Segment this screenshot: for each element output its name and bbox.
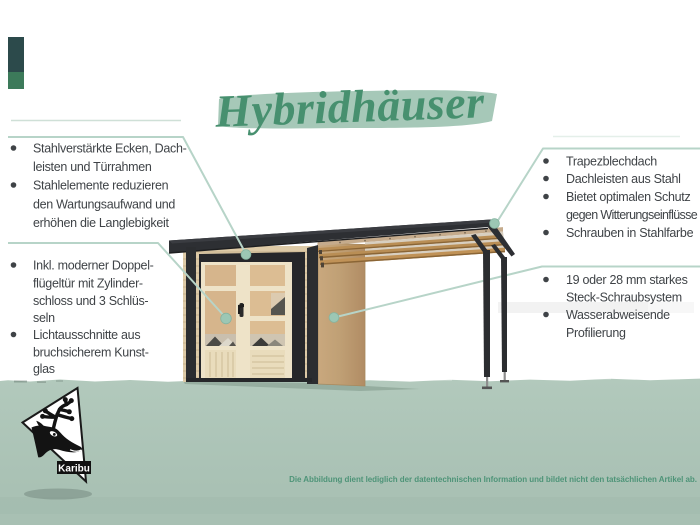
svg-text:leisten und Türrahmen: leisten und Türrahmen (33, 160, 152, 174)
svg-text:glas: glas (33, 362, 55, 376)
svg-text:Stahlverstärkte Ecken, Dach-: Stahlverstärkte Ecken, Dach- (33, 142, 187, 156)
svg-text:19 oder 28 mm starkes: 19 oder 28 mm starkes (566, 273, 688, 287)
svg-text:Trapezblechdach: Trapezblechdach (566, 155, 657, 169)
svg-text:Die Abbildung dient lediglich: Die Abbildung dient lediglich der datent… (289, 475, 697, 484)
svg-text:den Wartungsaufwand und: den Wartungsaufwand und (33, 198, 175, 212)
svg-text:Wasserabweisende: Wasserabweisende (566, 308, 670, 322)
svg-text:flügeltür mit Zylinder-: flügeltür mit Zylinder- (33, 277, 143, 291)
svg-text:Schrauben in Stahlfarbe: Schrauben in Stahlfarbe (566, 226, 694, 240)
svg-text:Hybridhäuser: Hybridhäuser (213, 76, 485, 136)
svg-text:erhöhen die Langlebigkeit: erhöhen die Langlebigkeit (33, 216, 169, 230)
svg-text:gegen Witterungseinflüsse: gegen Witterungseinflüsse (566, 208, 698, 222)
svg-text:Dachleisten aus Stahl: Dachleisten aus Stahl (566, 172, 681, 186)
svg-text:schloss und 3 Schlüs-: schloss und 3 Schlüs- (33, 294, 148, 308)
svg-text:Inkl. moderner Doppel-: Inkl. moderner Doppel- (33, 259, 154, 273)
svg-text:Lichtausschnitte aus: Lichtausschnitte aus (33, 328, 140, 342)
svg-text:seln: seln (33, 311, 55, 325)
svg-text:Bietet optimalen Schutz: Bietet optimalen Schutz (566, 190, 690, 204)
svg-text:Steck-Schraubsystem: Steck-Schraubsystem (566, 291, 682, 305)
svg-text:Profilierung: Profilierung (566, 326, 626, 340)
svg-text:Stahlelemente reduzieren: Stahlelemente reduzieren (33, 179, 169, 193)
svg-text:Karibu: Karibu (58, 464, 90, 475)
svg-text:bruchsicherem Kunst-: bruchsicherem Kunst- (33, 346, 149, 360)
